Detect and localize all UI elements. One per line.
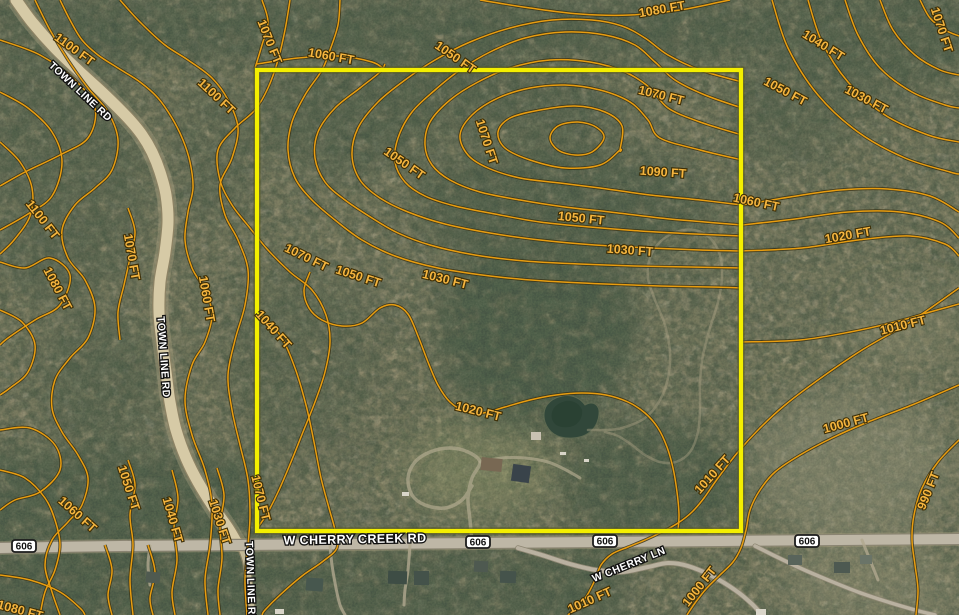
svg-text:606: 606 xyxy=(597,537,614,548)
svg-text:606: 606 xyxy=(16,542,33,553)
svg-text:606: 606 xyxy=(799,537,816,548)
svg-text:606: 606 xyxy=(470,538,487,549)
svg-text:W CHERRY CREEK RD: W CHERRY CREEK RD xyxy=(283,531,426,547)
svg-text:TOWN LINE RD: TOWN LINE RD xyxy=(243,541,258,615)
